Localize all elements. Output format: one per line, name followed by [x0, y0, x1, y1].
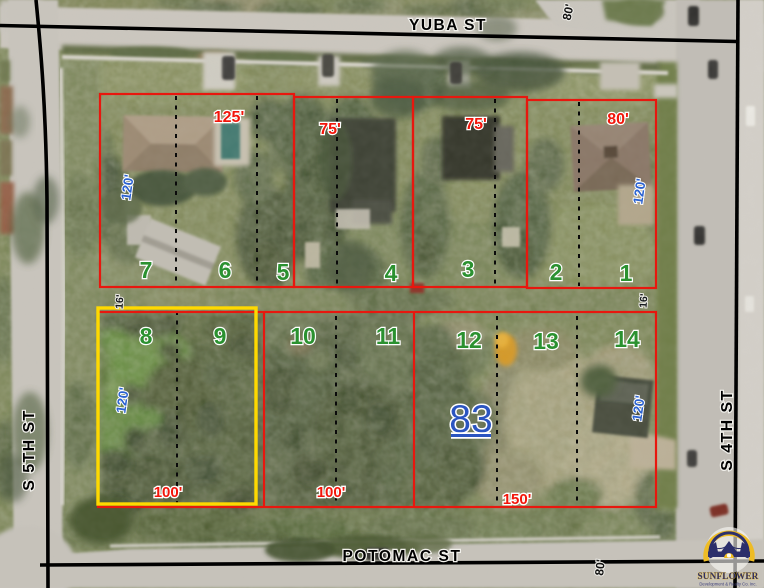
svg-text:7: 7	[140, 257, 153, 283]
svg-text:S 4TH ST: S 4TH ST	[719, 389, 736, 470]
svg-text:SUNFLOWER: SUNFLOWER	[697, 571, 758, 581]
svg-text:150': 150'	[503, 491, 532, 508]
svg-text:16': 16'	[114, 294, 127, 309]
svg-text:80': 80'	[592, 559, 608, 577]
svg-text:16': 16'	[638, 293, 651, 308]
svg-text:11: 11	[376, 323, 401, 349]
svg-text:100': 100'	[154, 484, 183, 501]
svg-text:100': 100'	[317, 484, 346, 501]
svg-text:125': 125'	[214, 109, 245, 126]
svg-text:3: 3	[462, 256, 475, 282]
svg-text:1: 1	[620, 260, 633, 286]
svg-text:14: 14	[614, 326, 640, 352]
svg-text:13: 13	[533, 328, 559, 354]
svg-text:5: 5	[277, 259, 290, 285]
svg-text:YUBA ST: YUBA ST	[409, 17, 487, 34]
svg-text:75': 75'	[465, 116, 487, 133]
svg-text:POTOMAC ST: POTOMAC ST	[342, 548, 461, 565]
svg-text:12: 12	[456, 327, 482, 353]
svg-text:80': 80'	[607, 111, 629, 128]
svg-text:4: 4	[385, 260, 398, 286]
svg-text:Development & Realty Co. Inc.: Development & Realty Co. Inc.	[699, 582, 756, 587]
svg-text:10: 10	[290, 323, 316, 349]
svg-text:8: 8	[140, 323, 153, 349]
svg-text:9: 9	[214, 323, 227, 349]
svg-text:2: 2	[550, 259, 563, 285]
svg-text:6: 6	[219, 257, 232, 283]
svg-text:S 5TH ST: S 5TH ST	[21, 409, 38, 490]
svg-text:75': 75'	[319, 121, 341, 138]
